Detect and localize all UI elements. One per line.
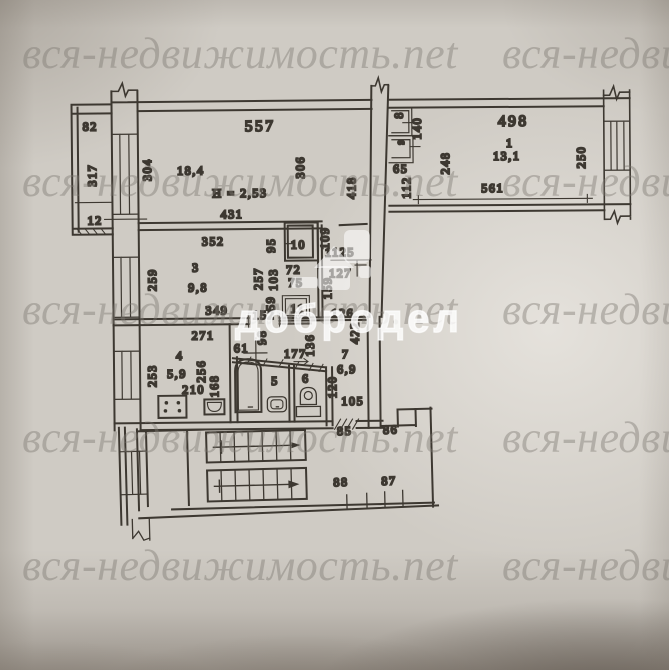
svg-text:95: 95 bbox=[264, 238, 278, 253]
svg-text:9: 9 bbox=[396, 140, 406, 145]
svg-text:561: 561 bbox=[481, 181, 504, 195]
svg-text:12: 12 bbox=[88, 213, 103, 227]
svg-text:105: 105 bbox=[341, 394, 364, 408]
svg-text:557: 557 bbox=[245, 118, 276, 135]
svg-text:5: 5 bbox=[271, 374, 279, 388]
svg-text:82: 82 bbox=[83, 120, 98, 134]
svg-text:352: 352 bbox=[202, 234, 225, 248]
svg-text:253: 253 bbox=[145, 364, 159, 387]
svg-text:5,9: 5,9 bbox=[167, 367, 187, 381]
svg-text:431: 431 bbox=[220, 207, 243, 221]
svg-text:4: 4 bbox=[176, 349, 184, 363]
svg-text:210: 210 bbox=[182, 382, 205, 396]
svg-text:168: 168 bbox=[207, 375, 221, 398]
svg-text:498: 498 bbox=[498, 113, 529, 130]
svg-text:140: 140 bbox=[410, 117, 424, 140]
svg-text:7: 7 bbox=[342, 347, 350, 361]
svg-text:8: 8 bbox=[392, 111, 406, 119]
svg-text:6: 6 bbox=[302, 371, 310, 385]
svg-text:88: 88 bbox=[333, 475, 349, 489]
svg-text:120: 120 bbox=[325, 375, 339, 398]
svg-text:6,9: 6,9 bbox=[337, 362, 357, 376]
svg-text:3: 3 bbox=[192, 261, 200, 275]
svg-text:72: 72 bbox=[286, 263, 301, 277]
svg-text:10: 10 bbox=[291, 238, 306, 252]
svg-text:61: 61 bbox=[234, 341, 249, 355]
svg-text:1: 1 bbox=[506, 136, 514, 150]
svg-text:256: 256 bbox=[194, 360, 208, 383]
svg-text:87: 87 bbox=[381, 474, 397, 488]
